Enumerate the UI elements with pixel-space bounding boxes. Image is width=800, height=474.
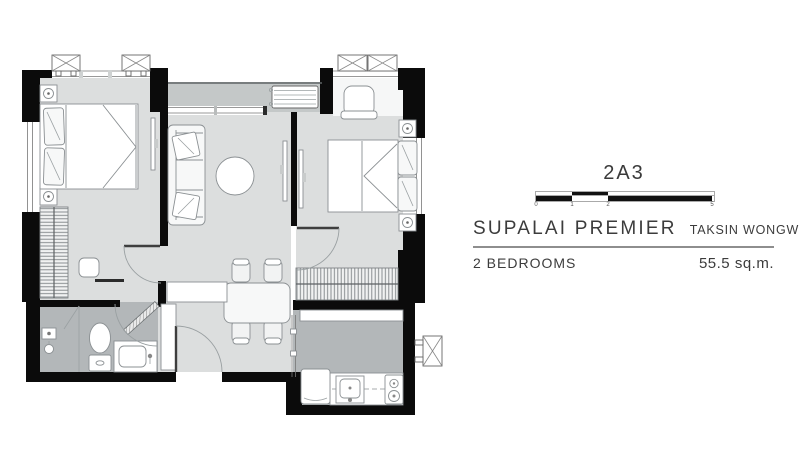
downlight-icon: [40, 85, 57, 102]
toilet: [89, 323, 111, 371]
sink: [336, 376, 364, 403]
scale-bar: [535, 191, 715, 202]
bedrooms-label: 2 BEDROOMS: [473, 255, 576, 271]
scale-tick-0: 0: [534, 202, 537, 208]
fridge: [301, 369, 330, 404]
floorplan-drawing: [0, 0, 470, 474]
sofa: [168, 125, 205, 225]
foyer-cabinet: [167, 282, 227, 302]
wardrobe-1: [40, 207, 68, 298]
ac-unit-icon: [368, 55, 397, 71]
condenser-unit-icon: [269, 86, 318, 108]
scale-tick-5: 5: [710, 202, 713, 208]
foyer-cabinet: [161, 304, 176, 370]
bed-2: [328, 140, 417, 212]
wardrobe-2: [296, 268, 398, 300]
downlight-icon: [399, 214, 416, 231]
unit-code: 2A3: [535, 162, 713, 185]
info-panel: 2A3 0 1 2 5 SUPALAI PREMIER TAKSIN WONGW…: [473, 162, 774, 272]
window-bedroom1-left: [26, 122, 34, 212]
stool: [79, 258, 99, 277]
sliding-door-balcony: [168, 106, 267, 115]
scale-ticks: 0 1 2 5: [535, 202, 713, 210]
armchair: [341, 86, 377, 119]
stove: [385, 375, 403, 404]
kitchen-counter: [300, 310, 403, 321]
dining-table: [224, 283, 290, 323]
area-label: 55.5 sq.m.: [699, 255, 774, 272]
project-name: SUPALAI PREMIER: [473, 218, 677, 240]
ac-unit-icon: [415, 336, 442, 366]
bed-1: [40, 104, 138, 189]
floorplan-sheet: 2A3 0 1 2 5 SUPALAI PREMIER TAKSIN WONGW…: [0, 0, 800, 474]
coffee-table: [216, 157, 254, 195]
scale-tick-1: 1: [570, 202, 573, 208]
thin-partition-wall: [95, 279, 124, 282]
downlight-icon: [40, 188, 57, 205]
scale-tick-2: 2: [606, 202, 609, 208]
divider-rule: [473, 246, 774, 248]
ac-unit-icon: [338, 55, 367, 71]
project-location: TAKSIN WONGWIANYAI: [690, 223, 800, 237]
downlight-icon: [399, 120, 416, 137]
scale-bar-block: 2A3 0 1 2 5: [535, 162, 713, 210]
